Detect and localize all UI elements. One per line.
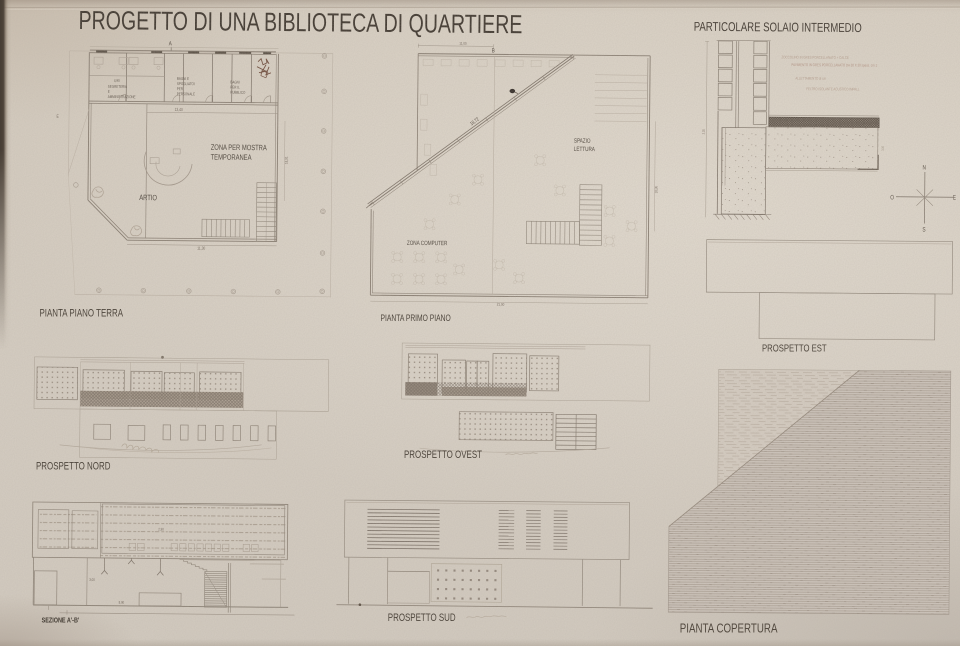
svg-text:PIANTA COPERTURA: PIANTA COPERTURA: [680, 622, 778, 636]
svg-text:SPAZIO: SPAZIO: [574, 138, 591, 145]
svg-text:11,00: 11,00: [459, 41, 466, 46]
svg-text:BAGNI: BAGNI: [230, 80, 239, 85]
svg-text:21,00: 21,00: [497, 302, 505, 307]
svg-text:3,10: 3,10: [880, 146, 885, 151]
svg-text:B: B: [492, 48, 495, 55]
svg-text:PERSONALE: PERSONALE: [177, 92, 196, 97]
svg-text:PER IL: PER IL: [230, 85, 240, 90]
svg-text:18,72: 18,72: [469, 116, 480, 127]
svg-text:PROSPETTO NORD: PROSPETTO NORD: [36, 460, 111, 471]
svg-text:PROSPETTO SUD: PROSPETTO SUD: [388, 612, 456, 623]
svg-text:SEZIONE A'-B': SEZIONE A'-B': [42, 617, 80, 625]
svg-text:3,30: 3,30: [701, 129, 706, 134]
svg-text:18,91: 18,91: [284, 156, 289, 164]
svg-text:13,40: 13,40: [175, 106, 183, 112]
svg-text:PIANTA PIANO TERRA: PIANTA PIANO TERRA: [40, 307, 124, 318]
svg-text:PER: PER: [177, 87, 184, 92]
svg-text:TEMPORANEA: TEMPORANEA: [211, 154, 252, 162]
svg-text:ZONA COMPUTER: ZONA COMPUTER: [407, 240, 448, 247]
svg-text:PROSPETTO EST: PROSPETTO EST: [762, 342, 827, 353]
svg-text:PROSPETTO OVEST: PROSPETTO OVEST: [404, 449, 482, 460]
svg-text:LETTURA: LETTURA: [574, 146, 596, 153]
svg-text:S: S: [922, 227, 925, 234]
svg-text:ALLETTAMENTO di cm: ALLETTAMENTO di cm: [795, 76, 826, 81]
svg-text:SPOGLIATOI: SPOGLIATOI: [177, 82, 195, 87]
svg-text:PUBBLICO: PUBBLICO: [230, 90, 245, 95]
svg-text:11,30: 11,30: [197, 245, 205, 251]
svg-text:8,90: 8,90: [119, 600, 125, 605]
svg-text:N: N: [923, 165, 927, 172]
svg-text:SEGRETERIA: SEGRETERIA: [108, 84, 128, 89]
svg-text:ARTIO: ARTIO: [139, 194, 157, 202]
svg-text:2,90: 2,90: [158, 527, 164, 532]
svg-text:PARTICOLARE SOLAIO INTERMEDIO: PARTICOLARE SOLAIO INTERMEDIO: [694, 21, 862, 36]
svg-text:ZONA PER MOSTRA: ZONA PER MOSTRA: [211, 144, 267, 152]
svg-text:BAGNI E: BAGNI E: [177, 77, 190, 82]
svg-text:3,00: 3,00: [89, 577, 95, 582]
svg-text:PIANTA PRIMO PIANO: PIANTA PRIMO PIANO: [381, 313, 451, 323]
svg-text:E: E: [953, 195, 956, 202]
svg-text:A: A: [169, 41, 172, 48]
svg-text:E: E: [108, 89, 111, 94]
svg-text:4,90: 4,90: [114, 78, 120, 83]
svg-text:ZOCCOLINO IN GRES PORCELLANATO: ZOCCOLINO IN GRES PORCELLANATO + CALCE: [781, 55, 849, 60]
svg-text:FELTRO ISOLANTE ACUSTICO IMPAL: FELTRO ISOLANTE ACUSTICO IMPALL: [806, 87, 859, 92]
svg-text:AMMINISTRAZIONE: AMMINISTRAZIONE: [108, 95, 136, 100]
svg-text:O: O: [890, 195, 894, 202]
svg-text:PAVIMENTO IN GRES PORCELLANATO: PAVIMENTO IN GRES PORCELLANATO DA 30 X 3…: [791, 63, 877, 68]
svg-text:E: E: [57, 113, 60, 119]
